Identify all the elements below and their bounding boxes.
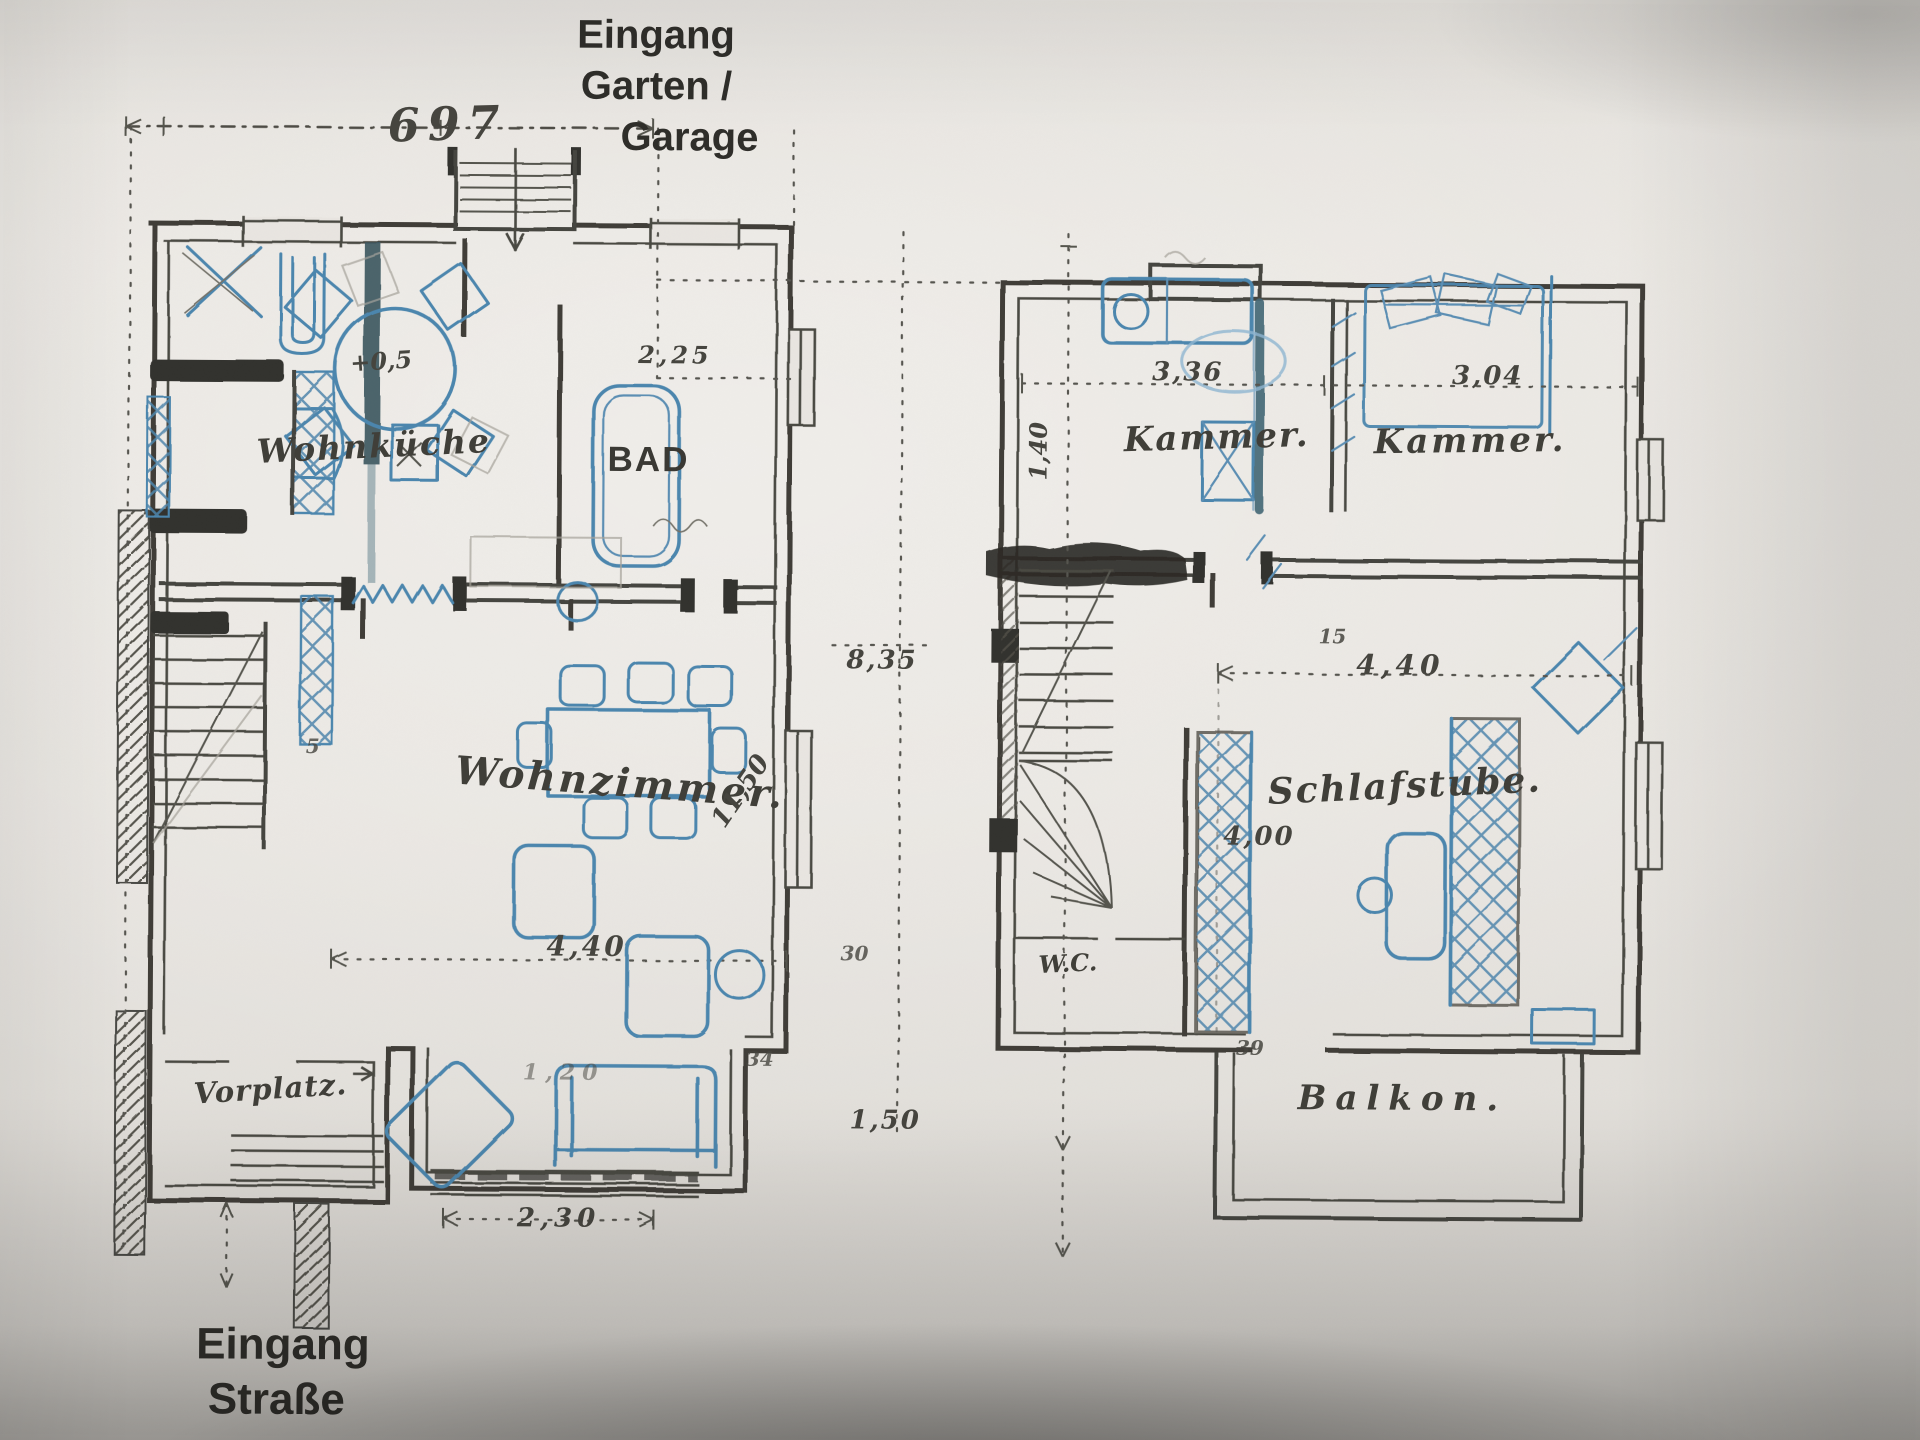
entrance-garden-line3: Garage xyxy=(620,112,758,164)
dim-level-mark: +0,5 xyxy=(349,345,413,378)
label-layer: Eingang Garten / Garage Eingang Straße B… xyxy=(0,0,1920,1440)
room-label-chamber-left: Kammer. xyxy=(1123,415,1310,460)
dim-bedroom-depth: 4,00 xyxy=(1223,822,1295,852)
entrance-street-line1: Eingang xyxy=(196,1317,370,1373)
entrance-garden-line2: Garten / xyxy=(581,61,759,113)
dim-upper-wall-tick-b: 39 xyxy=(1236,1036,1264,1060)
entrance-street-line2: Straße xyxy=(208,1372,370,1428)
dim-wall-tick-c: 5 xyxy=(306,734,320,758)
room-label-bedroom: Schlafstube. xyxy=(1267,758,1543,813)
dim-living-width: 4,40 xyxy=(547,929,627,962)
dim-bay-width: 2,30 xyxy=(517,1203,601,1234)
room-label-bath: BAD xyxy=(607,440,689,480)
scanned-floorplan-photo: Eingang Garten / Garage Eingang Straße B… xyxy=(0,0,1920,1440)
room-label-balcony: Balkon. xyxy=(1298,1078,1508,1119)
entrance-garden-label: Eingang Garten / Garage xyxy=(576,10,759,165)
dim-upper-wall-tick-a: 15 xyxy=(1318,624,1346,648)
dim-chamber-right-width: 3,04 xyxy=(1452,361,1524,391)
room-label-kitchen: Wohnküche xyxy=(256,421,492,471)
dim-house-depth: 8,35 xyxy=(846,645,918,675)
dim-wall-tick-b: 34 xyxy=(746,1047,774,1071)
room-label-wc: W.C. xyxy=(1038,947,1098,979)
dim-side-depth: 1,40 xyxy=(1023,422,1052,481)
entrance-street-label: Eingang Straße xyxy=(196,1317,370,1427)
dim-chamber-left-width: 3,36 xyxy=(1152,357,1224,387)
dim-bath-width: 2,25 xyxy=(638,340,713,369)
dim-overall-width: 697 xyxy=(387,95,509,152)
dim-wall-tick-a: 30 xyxy=(840,941,868,965)
dim-bay-note: 1,20 xyxy=(523,1059,605,1085)
dim-offset-right: 1,50 xyxy=(849,1105,921,1135)
entrance-garden-line1: Eingang xyxy=(577,10,759,62)
room-label-chamber-right: Kammer. xyxy=(1373,420,1566,462)
dim-bedroom-width: 4,40 xyxy=(1356,648,1444,682)
drawing-scene: Eingang Garten / Garage Eingang Straße B… xyxy=(0,0,1920,1440)
room-label-vestibule: Vorplatz. xyxy=(193,1067,348,1111)
